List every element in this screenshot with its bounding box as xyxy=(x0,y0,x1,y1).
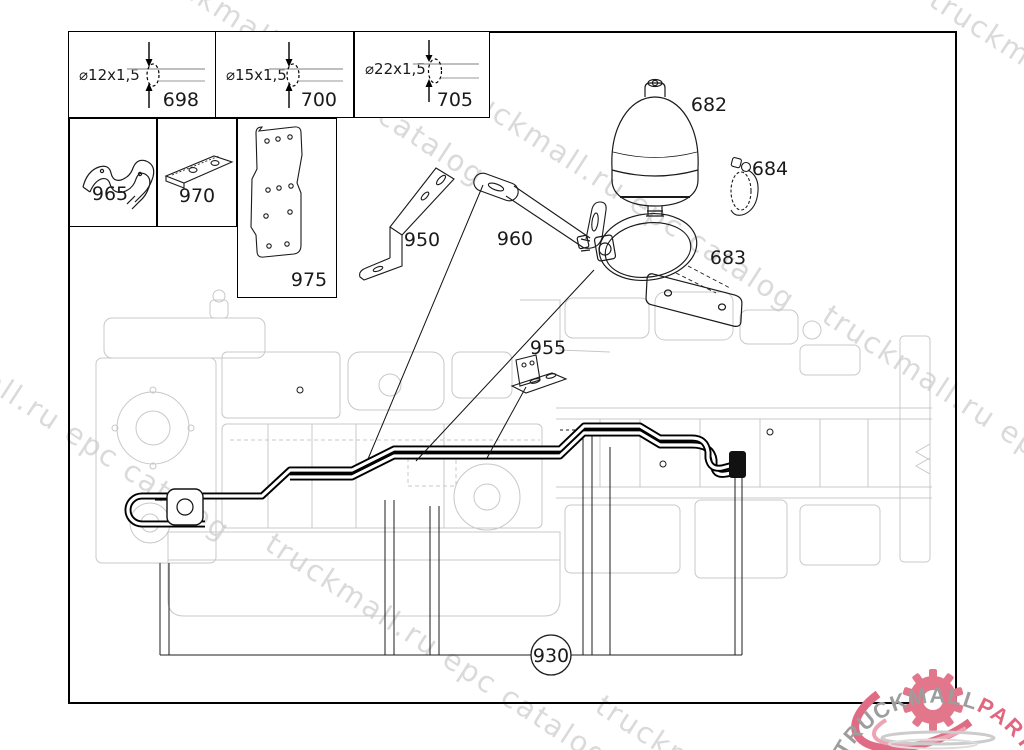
leader-line xyxy=(416,270,594,461)
label-955[interactable]: 955 xyxy=(530,337,566,359)
engine-diagram-art xyxy=(0,0,1024,750)
part-drawing-682 xyxy=(612,80,698,217)
fuel-pipe xyxy=(128,426,746,525)
engine-detail-lines xyxy=(160,387,773,655)
parts-diagram-page: truckmall.ru epc catalog truckmall.ru ep… xyxy=(0,0,1024,750)
label-684[interactable]: 684 xyxy=(752,158,788,180)
leader-line xyxy=(368,185,483,459)
part-drawing-975 xyxy=(251,127,302,257)
label-930[interactable]: 930 xyxy=(533,645,569,667)
part-drawing-955 xyxy=(512,355,566,393)
pipe-connector xyxy=(729,451,746,478)
label-683[interactable]: 683 xyxy=(710,247,746,269)
label-950[interactable]: 950 xyxy=(404,229,440,251)
label-965[interactable]: 965 xyxy=(92,183,128,205)
pipe-clamp xyxy=(167,489,203,525)
part-drawing-960 xyxy=(471,171,606,249)
label-975[interactable]: 975 xyxy=(291,269,327,291)
part-drawing-970 xyxy=(166,156,232,188)
label-682[interactable]: 682 xyxy=(691,94,727,116)
label-970[interactable]: 970 xyxy=(179,185,215,207)
brand-logo: TRUCKMALLPARTS xyxy=(830,640,1024,750)
label-960[interactable]: 960 xyxy=(497,228,533,250)
part-drawing-950 xyxy=(360,168,454,280)
